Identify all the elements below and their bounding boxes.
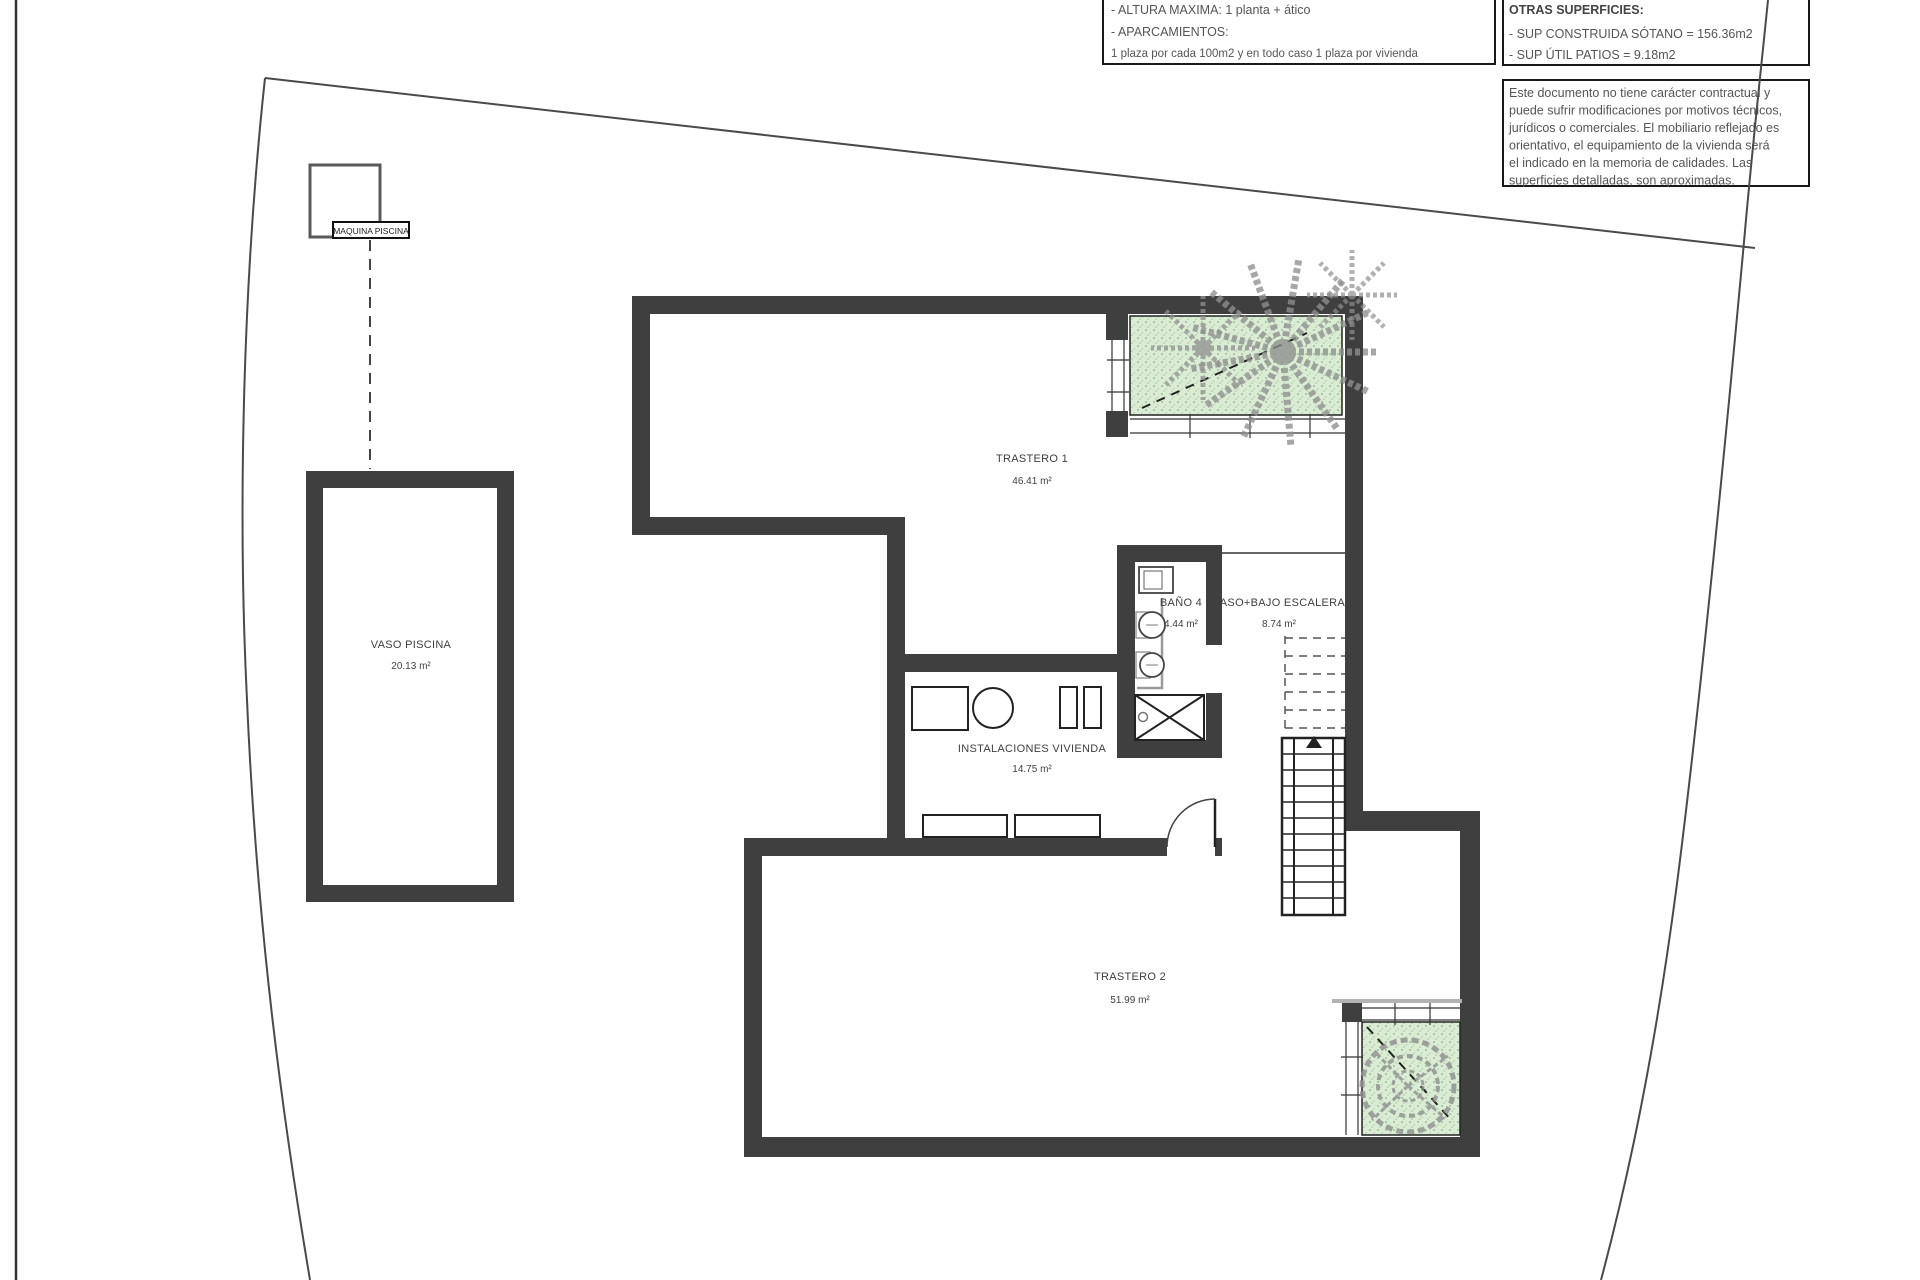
disclaimer-line-6: superficies detalladas, son aproximadas.	[1509, 174, 1735, 188]
shower-tray	[1135, 695, 1204, 740]
wall-bottom	[744, 1137, 1480, 1157]
equipment-boiler	[912, 687, 968, 730]
door-trastero2	[1167, 799, 1215, 847]
palm-tree-top	[1307, 250, 1397, 340]
wall-patio2-pillar	[1342, 1002, 1362, 1022]
instalaciones-area: 14.75 m²	[1012, 764, 1052, 775]
utility-equipment	[912, 687, 1101, 837]
wall-left-trastero1	[632, 314, 650, 535]
wall-step-down	[887, 535, 905, 672]
pool-walls	[315, 480, 506, 894]
pool-name: VASO PISCINA	[371, 639, 452, 651]
disclaimer-line-4: orientativo, el equipamiento de la vivie…	[1509, 139, 1770, 153]
wall-trastero1-arm-bottom	[632, 517, 905, 535]
trastero1-area: 46.41 m²	[1012, 476, 1052, 487]
equipment-bench-1	[923, 815, 1007, 837]
disclaimer-line-5: el indicado en la memoria de calidades. …	[1509, 156, 1752, 170]
pool-area: 20.13 m²	[391, 661, 431, 672]
wall-bath-divider-upper	[1206, 545, 1222, 645]
disclaimer-line-1: Este documento no tiene carácter contrac…	[1509, 86, 1771, 100]
equipment-bench-2	[1015, 815, 1100, 837]
door-swing-arc	[1167, 799, 1215, 847]
wall-instalaciones-top	[887, 654, 1135, 672]
paso-name: PASO+BAJO ESCALERA	[1213, 597, 1345, 609]
wall-top	[632, 296, 1363, 314]
planning-info-box: - ALTURA MAXIMA: 1 planta + ático - APAR…	[1103, 0, 1495, 64]
disclaimer-line-3: jurídicos o comerciales. El mobiliario r…	[1508, 121, 1779, 135]
surfaces-line-1: - SUP CONSTRUIDA SÓTANO = 156.36m2	[1509, 26, 1753, 41]
equipment-unit-1	[1060, 687, 1077, 728]
planning-line-3: 1 plaza por cada 100m2 y en todo caso 1 …	[1111, 48, 1418, 60]
bano4-name: BAÑO 4	[1160, 596, 1202, 609]
wall-bath-left	[1117, 562, 1135, 758]
trastero2-area: 51.99 m²	[1110, 995, 1150, 1006]
stairs-dashed-projection	[1285, 636, 1345, 730]
wall-patio-window-stub-bottom	[1106, 411, 1128, 437]
patio-se-green	[1362, 1022, 1460, 1135]
disclaimer-line-2: puede sufrir modificaciones por motivos …	[1509, 104, 1782, 118]
surfaces-line-2: - SUP ÚTIL PATIOS = 9.18m2	[1509, 47, 1676, 62]
wall-right-column	[1345, 314, 1363, 811]
wall-south-band	[744, 838, 1167, 856]
wall-right-step	[1345, 811, 1480, 831]
site-boundary-right	[1601, 0, 1768, 1280]
surfaces-title: OTRAS SUPERFICIES:	[1509, 3, 1644, 17]
pool: VASO PISCINA 20.13 m²	[315, 480, 506, 894]
planning-line-1: - ALTURA MAXIMA: 1 planta + ático	[1111, 3, 1311, 17]
bano4-area: 4.44 m²	[1164, 619, 1199, 630]
paso-area: 8.74 m²	[1262, 619, 1297, 630]
equipment-tank	[973, 688, 1013, 728]
building-walls	[632, 296, 1480, 1157]
staircase	[1282, 736, 1345, 915]
wall-trastero2-right	[1460, 831, 1480, 1137]
floor-plan-drawing: MAQUINA PISCINA VASO PISCINA 20.13 m²	[0, 0, 1920, 1280]
bathroom-fixtures	[1135, 567, 1204, 740]
pool-machine-label: MAQUINA PISCINA	[333, 226, 409, 236]
floor-plan-sheet: MAQUINA PISCINA VASO PISCINA 20.13 m²	[0, 0, 1920, 1280]
trastero2-name: TRASTERO 2	[1094, 971, 1166, 983]
trastero1-name: TRASTERO 1	[996, 453, 1068, 465]
wall-patio-window-stub-top	[1106, 314, 1128, 340]
disclaimer-box: Este documento no tiene carácter contrac…	[1503, 80, 1809, 188]
pool-machine: MAQUINA PISCINA	[310, 165, 409, 469]
staircase-outline	[1282, 738, 1345, 915]
patio-ne-window-bottom	[1130, 414, 1345, 438]
planning-line-2: - APARCAMIENTOS:	[1111, 25, 1229, 39]
wall-trastero2-left	[744, 856, 762, 1137]
instalaciones-name: INSTALACIONES VIVIENDA	[958, 743, 1107, 755]
equipment-unit-2	[1084, 687, 1101, 728]
wall-bath-divider-lower	[1206, 693, 1222, 758]
patio-ne-window-left	[1107, 340, 1129, 411]
wall-instalaciones-left	[887, 672, 905, 856]
patio-se-window-left	[1341, 1022, 1363, 1135]
palm-tree-small	[1151, 296, 1255, 400]
site-boundary-left	[243, 78, 310, 1280]
